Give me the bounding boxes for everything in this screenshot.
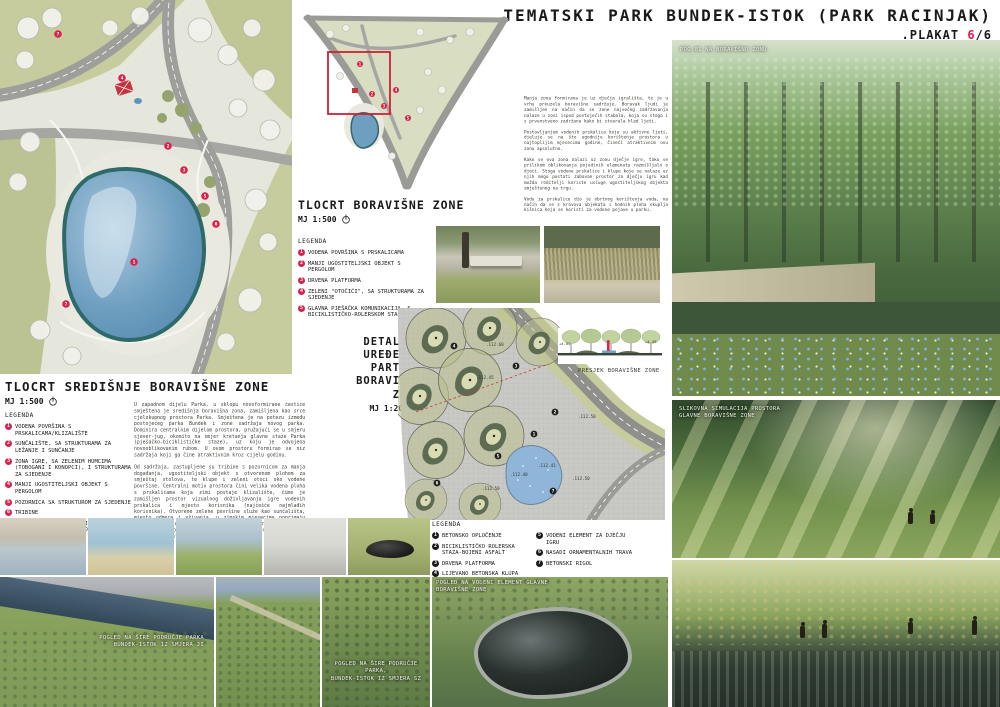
site-plan-central: 7 4 2 3 5 6 1 7 xyxy=(0,0,292,374)
paragraph: Vodu za prskalice dio je obrtnog korište… xyxy=(524,197,668,214)
child-silhouette xyxy=(822,624,827,638)
legend-heading: LEGENDA xyxy=(432,521,642,528)
legend-item: 5POZORNICA SA STRUKTUROM ZA SJEDENJE xyxy=(5,499,133,507)
aerial-render-sz: POGLED NA ŠIRE PODRUČJE PARKA, BUNDEK-IS… xyxy=(322,577,430,707)
svg-text:3: 3 xyxy=(515,364,518,370)
svg-text:7: 7 xyxy=(57,32,60,38)
description-text-zone: Manja zona formirana je uz dječja igrali… xyxy=(524,96,668,219)
legend-item: 6NASADI ORNAMENTALNIH TRAVA xyxy=(536,549,636,557)
svg-text:4: 4 xyxy=(121,76,124,82)
simulation-caption: SLIKOVNA SIMULACIJA PROSTORA GLAVNE BORA… xyxy=(679,406,780,421)
svg-text:3: 3 xyxy=(183,168,186,174)
paragraph: Postavljanjem vodenih prskalica koje su … xyxy=(524,130,668,153)
mini-building xyxy=(352,88,358,93)
render-boravisna-zona: POG.01 NA BORAVIŠNU ZONU xyxy=(672,40,1000,396)
ornamental-grasses xyxy=(544,248,660,280)
person-silhouette xyxy=(930,514,935,524)
site-plan-overview: 1 2 3 4 5 xyxy=(300,6,512,192)
svg-text:1: 1 xyxy=(533,432,536,438)
legend-item: 4ZELENI "OTOČIĆI", SA STRUKTURAMA ZA SJE… xyxy=(298,288,430,302)
section-figure xyxy=(607,343,610,351)
child-silhouette xyxy=(800,626,805,638)
legend-num: 6 xyxy=(5,509,12,516)
tree-texture xyxy=(216,605,320,707)
svg-text:.112.40: .112.40 xyxy=(510,472,528,477)
legend-item: 3ZONA IGRE, SA ZELENIM HUMCIMA (TOBOGANI… xyxy=(5,458,133,479)
reference-photo-water-plaza xyxy=(0,518,86,575)
section-drawing: +4.05 +4.49 xyxy=(558,328,662,364)
legend-item: 3DRVENA PLATFORMA xyxy=(298,277,430,285)
legend-num: 4 xyxy=(5,481,12,488)
reference-photo-grasses xyxy=(544,226,660,303)
svg-text:5: 5 xyxy=(497,454,500,460)
poster: TEMATSKI PARK BUNDEK-ISTOK (PARK RACINJA… xyxy=(0,0,1000,707)
paragraph: U zapadnom dijelu Parka, u sklopu novofo… xyxy=(134,402,305,459)
water-element-render: POGLED NA VODENI ELEMENT GLAVNE BORAVIŠN… xyxy=(432,577,668,707)
central-plan-scale: MJ 1:500 xyxy=(5,396,58,406)
legend-item: 3DRVENA PLATFORMA xyxy=(432,560,528,568)
legend-num: 2 xyxy=(298,260,305,267)
svg-text:+4.49: +4.49 xyxy=(645,339,657,344)
child-silhouette xyxy=(908,622,913,634)
legend-num: 6 xyxy=(536,549,543,556)
aerial-render-mid xyxy=(216,577,320,707)
svg-text:.112.60: .112.60 xyxy=(486,342,504,347)
hedge xyxy=(672,302,1000,336)
legend-heading: LEGENDA xyxy=(298,238,430,245)
tree-texture xyxy=(322,577,430,707)
reference-photo-sculpture xyxy=(348,518,430,575)
legend-item: 7BETONSKI RIGOL xyxy=(536,560,636,568)
child-silhouette xyxy=(972,620,977,635)
aerial-caption-ji: POGLED NA ŠIRE PODRUČJE PARKA BUNDEK-IST… xyxy=(96,635,204,650)
legend-num: 2 xyxy=(432,543,439,550)
legend-num: 5 xyxy=(5,499,12,506)
legend-num: 3 xyxy=(432,560,439,567)
overview-plan-scale: MJ 1:500 xyxy=(298,214,351,224)
scale-text: MJ 1:500 xyxy=(5,397,44,406)
svg-text:.112.50: .112.50 xyxy=(572,476,590,481)
svg-text:5: 5 xyxy=(204,194,207,200)
legend-item: 1VODENA POVRŠINA S PRSKALICAMA xyxy=(298,249,430,257)
svg-text:.112.45: .112.45 xyxy=(476,375,494,380)
central-plan-title: TLOCRT SREDIŠNJE BORAVIŠNE ZONE xyxy=(5,379,269,394)
legend-num: 1 xyxy=(5,423,12,430)
canopy-light xyxy=(672,56,1000,206)
reference-photo-bench xyxy=(436,226,540,303)
svg-text:.112.50: .112.50 xyxy=(578,414,596,419)
svg-text:.112.41: .112.41 xyxy=(538,463,556,468)
autumn-foliage xyxy=(672,560,1000,645)
svg-text:2: 2 xyxy=(167,144,170,150)
legend-num: 4 xyxy=(298,288,305,295)
legend-num: 3 xyxy=(298,277,305,284)
legend-item: 1VODENA POVRŠINA S PRSKALICAMA/KLIZALIŠT… xyxy=(5,423,133,437)
legend-heading: LEGENDA xyxy=(5,412,133,419)
legend-num: 7 xyxy=(536,560,543,567)
legend-item: 1BETONSKO OPLOČENJE xyxy=(432,532,528,540)
north-arrow-icon xyxy=(341,214,351,224)
organic-sculpture xyxy=(366,540,414,558)
svg-text:6: 6 xyxy=(215,222,218,228)
svg-text:1: 1 xyxy=(133,260,136,266)
person-silhouette xyxy=(908,512,913,524)
legend-item: 6TRIBINE xyxy=(5,509,133,517)
reference-photo-beach xyxy=(88,518,174,575)
legend-num: 5 xyxy=(536,532,543,539)
concrete-bench xyxy=(470,256,522,266)
water-render-caption: POGLED NA VODENI ELEMENT GLAVNE BORAVIŠN… xyxy=(436,580,548,595)
section-ground xyxy=(558,353,662,355)
overview-plan-title: TLOCRT BORAVIŠNE ZONE xyxy=(298,198,464,212)
legend-item: 2BICIKLISTIČKO ROLERSKA STAZA-BOJENI ASF… xyxy=(432,543,528,557)
svg-text:6: 6 xyxy=(436,481,439,487)
section-figure-head xyxy=(607,340,610,343)
svg-text:+4.05: +4.05 xyxy=(559,341,570,346)
fountain xyxy=(134,98,142,104)
render-caption-pog01: POG.01 NA BORAVIŠNU ZONU xyxy=(680,47,767,54)
paragraph: Kako se ova zona nalazi uz zonu dječje i… xyxy=(524,157,668,191)
legend-item: 2MANJI UGOSTITELJSKI OBJEKT S PERGOLOM xyxy=(298,260,430,274)
legend-num: 1 xyxy=(432,532,439,539)
legend-item: 4MANJI UGOSTITELJSKI OBJEKT S PERGOLOM xyxy=(5,481,133,495)
render-children-water-mirror xyxy=(672,560,1000,707)
page-title: TEMATSKI PARK BUNDEK-ISTOK (PARK RACINJA… xyxy=(503,6,992,25)
svg-text:2: 2 xyxy=(554,410,557,416)
north-arrow-icon xyxy=(48,396,58,406)
paragraph: Manja zona formirana je uz dječja igrali… xyxy=(524,96,668,124)
svg-text:7: 7 xyxy=(552,489,555,495)
scale-text: MJ 1:500 xyxy=(298,215,337,224)
water-reflection xyxy=(672,651,1000,707)
svg-text:4: 4 xyxy=(453,344,456,350)
aerial-render-ji: POGLED NA ŠIRE PODRUČJE PARKA BUNDEK-IST… xyxy=(0,577,214,707)
legend-item: 2SUNČALIŠTE, SA STRUKTURAMA ZA LEŽANJE I… xyxy=(5,440,133,454)
legend-num: 2 xyxy=(5,440,12,447)
sun-glow xyxy=(672,400,1000,558)
reference-photo-plaza-steps xyxy=(264,518,346,575)
legend-num: 1 xyxy=(298,249,305,256)
legend-detail: LEGENDA 1BETONSKO OPLOČENJE 2BICIKLISTIČ… xyxy=(432,521,642,532)
flower-meadow xyxy=(672,334,1000,396)
reference-photo-lawn xyxy=(176,518,262,575)
aerial-caption-sz: POGLED NA ŠIRE PODRUČJE PARKA, BUNDEK-IS… xyxy=(326,661,426,683)
section-caption: PRESJEK BORAVIŠNE ZONE xyxy=(578,368,660,374)
svg-text:.112.50: .112.50 xyxy=(482,486,500,491)
mirror-pond xyxy=(478,611,628,695)
legend-num: 5 xyxy=(298,305,305,312)
svg-text:7: 7 xyxy=(65,302,68,308)
render-simulation-sunrays: SLIKOVNA SIMULACIJA PROSTORA GLAVNE BORA… xyxy=(672,400,1000,558)
legend-num: 3 xyxy=(5,458,12,465)
mini-pond xyxy=(351,113,378,148)
tree-trunk xyxy=(462,232,469,268)
legend-item: 5VODENI ELEMENT ZA DJEČJU IGRU xyxy=(536,532,636,546)
